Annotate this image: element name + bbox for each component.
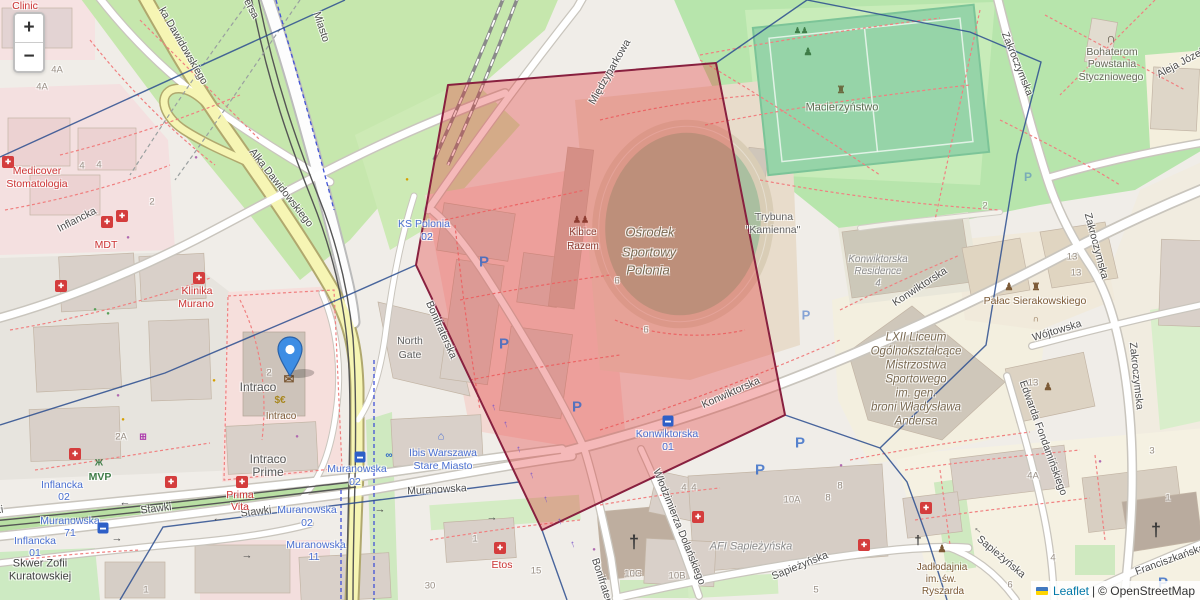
zoom-out-button[interactable]: − [15,43,43,71]
attribution-bar: Leaflet | © OpenStreetMap [1031,581,1200,600]
sports-pitch [753,5,989,175]
leaflet-map[interactable]: StawkiStawkiStawkiMuranowskaInflanckaMię… [0,0,1200,600]
leaflet-link[interactable]: Leaflet [1053,584,1089,598]
zoom-control: + − [13,12,45,73]
base-map [0,0,1200,600]
osm-attribution: © OpenStreetMap [1098,584,1195,598]
ukraine-flag-icon [1036,587,1048,595]
zoom-in-button[interactable]: + [15,14,43,43]
map-marker[interactable] [277,336,303,378]
attribution-separator: | [1092,584,1095,598]
